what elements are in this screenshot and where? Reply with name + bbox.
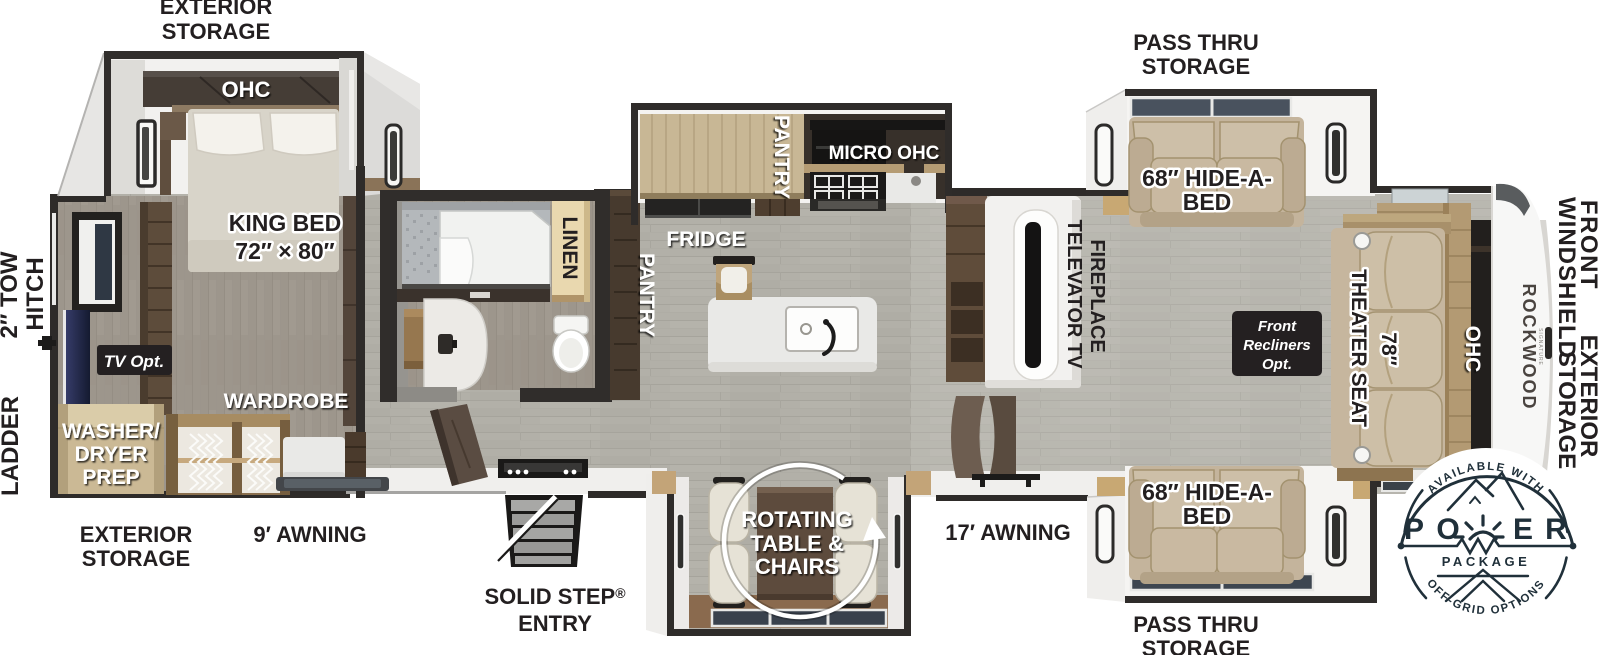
svg-text:KING BED: KING BED xyxy=(229,210,341,236)
svg-text:SOLID STEP®: SOLID STEP® xyxy=(484,584,626,609)
svg-text:LADDER: LADDER xyxy=(0,396,24,496)
svg-text:O: O xyxy=(1436,513,1459,546)
svg-text:EXTERIOR: EXTERIOR xyxy=(160,0,273,19)
svg-text:P: P xyxy=(1404,513,1424,546)
svg-text:Opt.: Opt. xyxy=(1262,356,1292,373)
svg-text:17′ AWNING: 17′ AWNING xyxy=(945,520,1070,545)
svg-text:2″ TOW: 2″ TOW xyxy=(0,251,23,338)
svg-text:EXTERIOR: EXTERIOR xyxy=(80,522,193,547)
svg-text:FRIDGE: FRIDGE xyxy=(666,228,745,251)
svg-text:72″ × 80″: 72″ × 80″ xyxy=(235,238,334,264)
svg-text:THEATER SEAT: THEATER SEAT xyxy=(1347,269,1370,427)
svg-text:PANTRY: PANTRY xyxy=(770,115,793,199)
svg-text:ENTRY: ENTRY xyxy=(518,611,592,636)
svg-text:78″: 78″ xyxy=(1377,332,1400,365)
svg-text:PANTRY: PANTRY xyxy=(635,253,658,337)
svg-text:STORAGE: STORAGE xyxy=(82,546,190,571)
svg-text:STORAGE: STORAGE xyxy=(1142,636,1250,655)
svg-text:SIGNATURE: SIGNATURE xyxy=(1537,328,1543,366)
svg-text:MICRO OHC: MICRO OHC xyxy=(829,143,940,164)
svg-text:Recliners: Recliners xyxy=(1243,337,1311,354)
svg-text:PACKAGE: PACKAGE xyxy=(1442,554,1531,569)
svg-text:68″ HIDE-A-: 68″ HIDE-A- xyxy=(1142,479,1272,505)
svg-text:9′ AWNING: 9′ AWNING xyxy=(253,522,366,547)
svg-text:ROTATING: ROTATING xyxy=(741,507,853,532)
svg-text:PREP: PREP xyxy=(82,466,139,489)
svg-text:HITCH: HITCH xyxy=(22,257,49,330)
svg-text:68″ HIDE-A-: 68″ HIDE-A- xyxy=(1142,165,1272,191)
svg-text:ROCKWOOD: ROCKWOOD xyxy=(1519,284,1539,411)
svg-text:E: E xyxy=(1513,513,1533,546)
svg-text:PASS THRU: PASS THRU xyxy=(1133,30,1259,55)
svg-text:WARDROBE: WARDROBE xyxy=(224,390,349,413)
svg-text:TELEVATOR TV: TELEVATOR TV xyxy=(1063,220,1085,370)
svg-text:TV Opt.: TV Opt. xyxy=(104,352,164,371)
svg-text:BED: BED xyxy=(1183,503,1232,529)
svg-text:Front: Front xyxy=(1258,318,1297,335)
svg-text:STORAGE: STORAGE xyxy=(1553,351,1580,469)
svg-text:TABLE &: TABLE & xyxy=(750,531,844,556)
svg-text:R: R xyxy=(1545,513,1567,546)
svg-text:STORAGE: STORAGE xyxy=(162,19,270,44)
svg-text:DRYER: DRYER xyxy=(75,443,148,466)
svg-text:BED: BED xyxy=(1183,189,1232,215)
svg-text:LINEN: LINEN xyxy=(558,217,581,280)
svg-text:FIREPLACE: FIREPLACE xyxy=(1086,239,1108,352)
svg-text:OHC: OHC xyxy=(1461,326,1484,373)
svg-text:PASS THRU: PASS THRU xyxy=(1133,612,1259,637)
svg-text:WASHER/: WASHER/ xyxy=(62,420,160,443)
svg-text:OHC: OHC xyxy=(222,77,271,102)
svg-text:STORAGE: STORAGE xyxy=(1142,54,1250,79)
svg-text:CHAIRS: CHAIRS xyxy=(755,554,839,579)
